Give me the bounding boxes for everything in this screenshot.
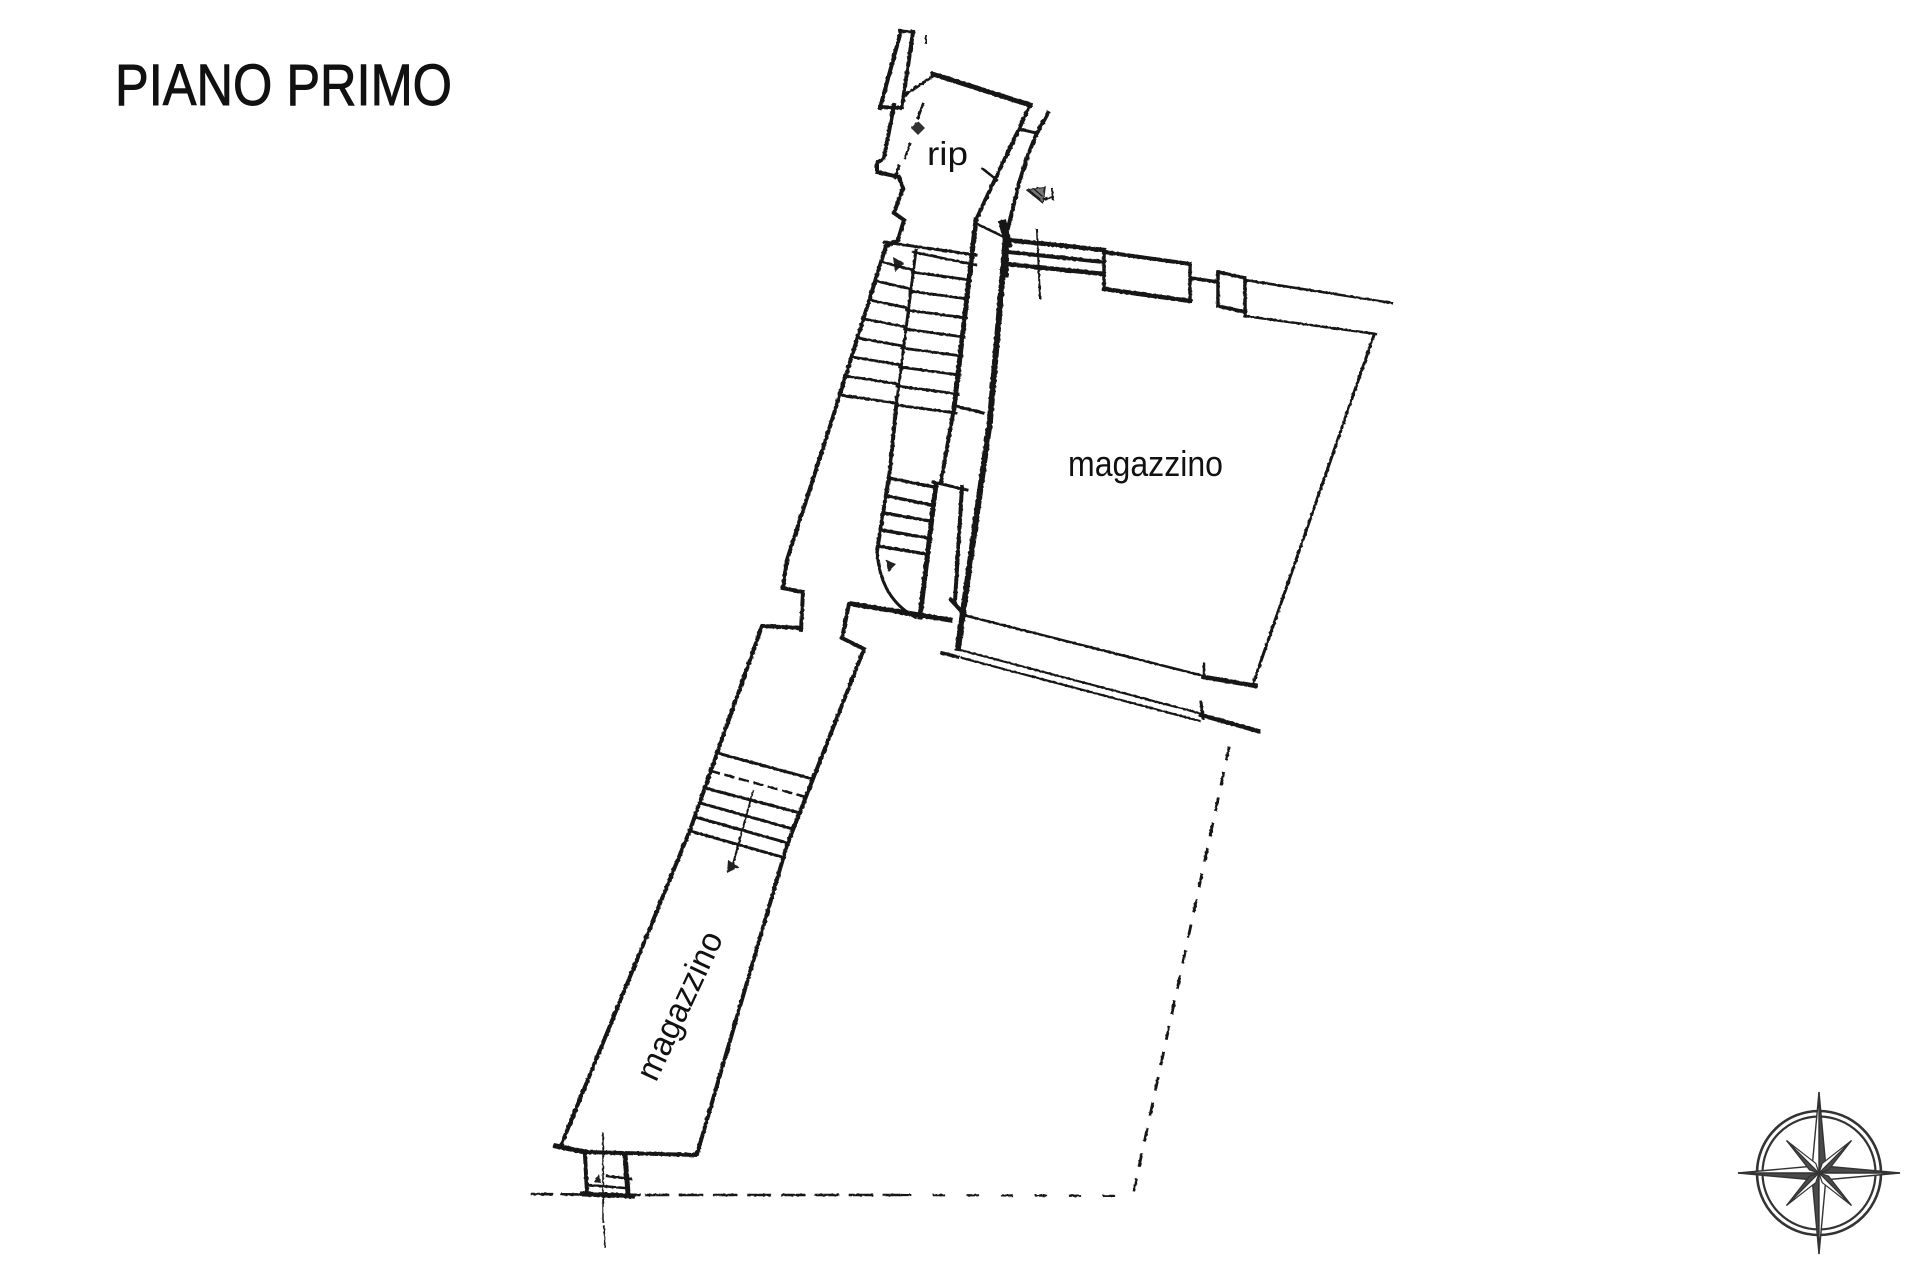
svg-text:magazzino: magazzino	[1068, 443, 1223, 484]
svg-text:rip: rip	[927, 135, 968, 172]
svg-text:PIANO PRIMO: PIANO PRIMO	[115, 53, 452, 118]
